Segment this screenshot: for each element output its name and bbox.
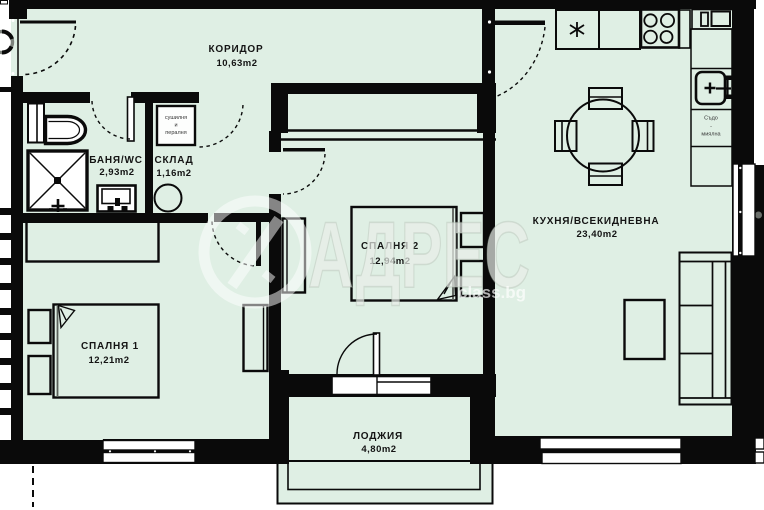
svg-text:-: - [710, 124, 712, 130]
svg-text:ЛОДЖИЯ: ЛОДЖИЯ [353, 431, 403, 442]
svg-text:2,93m2: 2,93m2 [99, 167, 134, 178]
svg-text:пералня: пералня [165, 130, 186, 136]
svg-text:12,21m2: 12,21m2 [88, 355, 129, 366]
svg-text:class.bg: class.bg [458, 283, 526, 302]
svg-text:СКЛАД: СКЛАД [154, 155, 193, 166]
svg-text:КОРИДОР: КОРИДОР [209, 44, 264, 55]
svg-text:миялна: миялна [701, 132, 721, 138]
svg-text:Съдо: Съдо [704, 116, 718, 122]
svg-text:БАНЯ/WC: БАНЯ/WC [89, 155, 142, 166]
svg-text:и: и [174, 123, 177, 129]
svg-text:4,80m2: 4,80m2 [361, 444, 396, 455]
svg-text:1,16m2: 1,16m2 [156, 168, 191, 179]
svg-text:КУХНЯ/ВСЕКИДНЕВНА: КУХНЯ/ВСЕКИДНЕВНА [533, 216, 660, 227]
svg-text:23,40m2: 23,40m2 [576, 229, 617, 240]
svg-text:сушилня: сушилня [165, 115, 187, 121]
svg-text:10,63m2: 10,63m2 [216, 58, 257, 69]
svg-text:СПАЛНЯ 1: СПАЛНЯ 1 [81, 341, 139, 352]
